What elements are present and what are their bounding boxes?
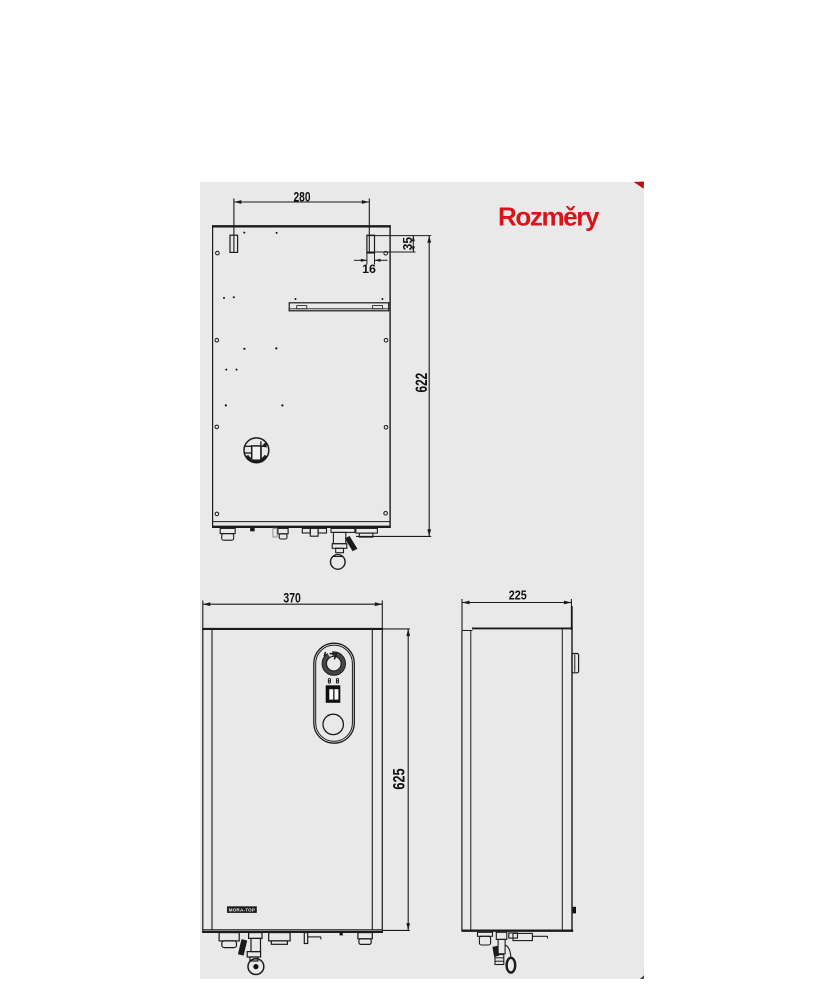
svg-text:370: 370 (283, 590, 300, 605)
svg-text:16: 16 (362, 262, 376, 276)
svg-text:225: 225 (509, 588, 527, 603)
svg-text:35: 35 (400, 237, 415, 250)
svg-text:280: 280 (294, 189, 311, 205)
svg-text:Rozměry: Rozměry (498, 202, 600, 232)
svg-text:622: 622 (413, 373, 431, 393)
svg-text:MORA-TOP: MORA-TOP (229, 907, 256, 912)
svg-text:625: 625 (390, 768, 409, 789)
